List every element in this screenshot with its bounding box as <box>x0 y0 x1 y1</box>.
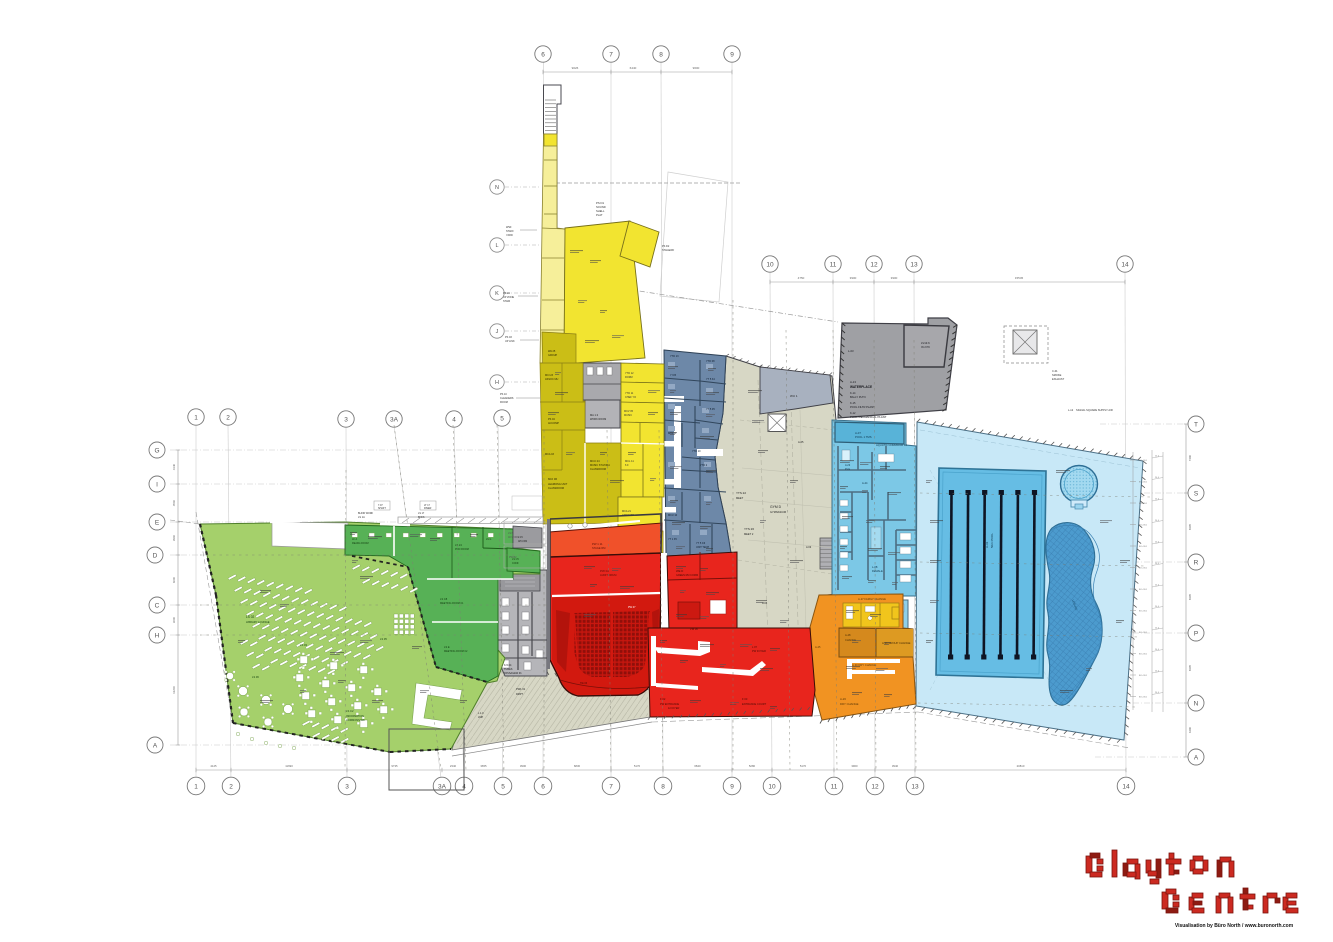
svg-text:TIE 06: TIE 06 <box>580 682 588 685</box>
svg-text:PW ENTRANCE: PW ENTRANCE <box>660 702 679 706</box>
svg-text:GREEN RM COMM: GREEN RM COMM <box>676 574 698 577</box>
svg-text:INFORMATION: INFORMATION <box>346 714 364 718</box>
svg-text:LS 24: LS 24 <box>455 543 462 547</box>
svg-text:PS 2A: PS 2A <box>503 292 510 295</box>
svg-text:3: 3 <box>344 416 348 423</box>
svg-text:6: 6 <box>541 783 545 790</box>
svg-text:5170: 5170 <box>634 764 641 768</box>
svg-text:K-14: K-14 <box>850 391 856 395</box>
svg-text:15545: 15545 <box>1015 276 1024 280</box>
svg-text:LS B: LS B <box>508 532 514 535</box>
svg-text:EXHAUST: EXHAUST <box>1052 377 1065 381</box>
svg-text:13200: 13200 <box>172 686 176 694</box>
svg-text:BO.4 B.1: BO.4 B.1 <box>1139 503 1148 505</box>
svg-text:BO.4 B.1: BO.4 B.1 <box>1139 697 1148 699</box>
svg-text:MCL 11: MCL 11 <box>625 459 634 463</box>
svg-text:2.15: 2.15 <box>518 536 523 539</box>
svg-text:YTD 08: YTD 08 <box>706 360 715 363</box>
svg-text:A 03: A 03 <box>806 545 812 549</box>
svg-text:3900: 3900 <box>520 764 527 768</box>
svg-text:PS 10: PS 10 <box>500 393 507 396</box>
svg-text:6 F: 6 F <box>625 464 629 467</box>
svg-text:LS 02: LS 02 <box>246 615 255 619</box>
svg-text:3900: 3900 <box>891 276 898 280</box>
svg-text:SIGNAL SQUARE SUPPLY AIR: SIGNAL SQUARE SUPPLY AIR <box>1076 408 1113 412</box>
svg-text:AV WORK: AV WORK <box>508 536 519 539</box>
svg-text:A-31: A-31 <box>985 541 989 548</box>
svg-text:C: C <box>155 602 160 609</box>
svg-text:R: R <box>1194 559 1199 566</box>
svg-text:9026: 9026 <box>572 66 579 70</box>
svg-text:7: 7 <box>609 783 613 790</box>
svg-text:PW 06: PW 06 <box>690 627 698 631</box>
svg-text:BO.4 B.1: BO.4 B.1 <box>1139 632 1148 634</box>
svg-text:DMPT: DMPT <box>516 693 524 696</box>
svg-text:LV13.6: LV13.6 <box>921 341 930 345</box>
svg-text:Visualisation by Büro North /: Visualisation by Büro North / www.burono… <box>1175 923 1294 929</box>
svg-text:4560: 4560 <box>172 499 176 506</box>
svg-text:POOL FILTR PLANT: POOL FILTR PLANT <box>850 405 875 409</box>
svg-text:LMP: LMP <box>478 716 483 719</box>
svg-text:8: 8 <box>661 783 665 790</box>
svg-text:LS E: LS E <box>444 645 450 649</box>
svg-text:WE D: WE D <box>676 569 683 573</box>
svg-text:A-26: A-26 <box>840 697 846 701</box>
svg-text:MCI 23: MCI 23 <box>545 374 554 377</box>
svg-text:SHAFT: SHAFT <box>378 507 386 510</box>
svg-text:MEETING ROOM 01: MEETING ROOM 01 <box>440 602 464 605</box>
svg-text:5: 5 <box>501 783 505 790</box>
svg-text:BALLY PLTN: BALLY PLTN <box>850 395 866 399</box>
svg-text:SMOKE: SMOKE <box>1052 373 1062 377</box>
svg-text:N: N <box>495 185 499 191</box>
svg-text:PW B2: PW B2 <box>509 556 517 559</box>
svg-text:BO.4 B.1: BO.4 B.1 <box>1139 675 1148 677</box>
svg-text:YTD 13: YTD 13 <box>670 355 679 358</box>
svg-text:PW 07: PW 07 <box>628 606 636 609</box>
svg-text:50m POOL: 50m POOL <box>990 533 994 548</box>
svg-text:A: A <box>1194 754 1199 761</box>
svg-text:MCI 06: MCI 06 <box>548 477 557 481</box>
svg-text:3960: 3960 <box>172 534 176 541</box>
svg-text:L 07: L 07 <box>752 645 758 649</box>
svg-text:COMMONS WK: COMMONS WK <box>346 718 365 722</box>
svg-text:A-27 FAMILY CHANGE: A-27 FAMILY CHANGE <box>858 597 886 601</box>
svg-text:LS C8: LS C8 <box>440 597 448 601</box>
svg-text:YT 5 C6: YT 5 C6 <box>696 542 706 545</box>
svg-text:PW1 01: PW1 01 <box>516 687 526 691</box>
svg-text:12: 12 <box>871 783 879 790</box>
svg-text:SHELL: SHELL <box>596 209 605 213</box>
svg-text:2: 2 <box>226 414 230 421</box>
svg-text:4125: 4125 <box>210 764 217 768</box>
svg-text:GYMNASIUM: GYMNASIUM <box>770 510 786 514</box>
svg-text:D: D <box>153 552 158 559</box>
svg-text:14: 14 <box>1122 783 1130 790</box>
svg-text:YT 5 05: YT 5 05 <box>706 408 715 411</box>
svg-text:6: 6 <box>541 51 545 58</box>
svg-text:L: L <box>495 243 498 249</box>
svg-text:3600: 3600 <box>172 616 176 623</box>
svg-text:MUSIC STU/ORA: MUSIC STU/ORA <box>590 464 610 467</box>
svg-text:DORM: DORM <box>625 376 633 379</box>
svg-text:14: 14 <box>1121 261 1129 268</box>
svg-text:POD ROOM: POD ROOM <box>455 548 469 551</box>
svg-text:STAFF: STAFF <box>506 230 514 233</box>
svg-text:LS 1A: LS 1A <box>358 516 365 519</box>
svg-text:BO.4 B.1: BO.4 B.1 <box>1139 611 1148 613</box>
svg-text:9600: 9600 <box>693 66 700 70</box>
svg-text:A-28: A-28 <box>845 633 851 637</box>
svg-text:F 02: F 02 <box>660 697 666 701</box>
svg-text:6830: 6830 <box>574 764 581 768</box>
svg-text:LS 17: LS 17 <box>418 512 425 515</box>
svg-text:6440: 6440 <box>630 66 637 70</box>
svg-text:LIBRARY LOUNGE: LIBRARY LOUNGE <box>246 620 270 624</box>
svg-text:CONF: CONF <box>512 562 519 565</box>
svg-text:BO.4 B.1: BO.4 B.1 <box>1139 482 1148 484</box>
svg-text:LEARNING UNIT: LEARNING UNIT <box>548 483 568 486</box>
svg-text:CLEANERS: CLEANERS <box>500 397 514 400</box>
svg-text:ASSOC MU: ASSOC MU <box>545 378 559 381</box>
svg-text:T: T <box>1194 421 1198 428</box>
svg-text:MCA 03: MCA 03 <box>545 453 555 456</box>
svg-text:UP LINK: UP LINK <box>505 340 515 343</box>
svg-text:2340: 2340 <box>450 764 457 768</box>
svg-text:YARD: YARD <box>506 234 513 237</box>
svg-text:CLASSROOM: CLASSROOM <box>548 487 564 490</box>
svg-text:P: P <box>1194 630 1198 637</box>
svg-text:PS 04: PS 04 <box>548 418 555 421</box>
svg-text:C-01: C-01 <box>1052 369 1058 373</box>
svg-text:PS D1: PS D1 <box>596 201 605 205</box>
svg-text:2: 2 <box>229 783 233 790</box>
svg-text:4: 4 <box>452 416 456 423</box>
svg-text:MEET 2: MEET 2 <box>744 532 754 536</box>
svg-text:WSF: WSF <box>506 226 512 229</box>
svg-text:Y 6 B: Y 6 B <box>670 374 676 377</box>
svg-text:LF A: LF A <box>352 538 357 541</box>
svg-text:J: J <box>496 329 499 335</box>
svg-text:BO.4 B.1: BO.4 B.1 <box>1139 654 1148 656</box>
svg-text:YTD 12: YTD 12 <box>625 372 634 375</box>
svg-text:G: G <box>154 447 159 454</box>
svg-text:6840: 6840 <box>694 764 701 768</box>
svg-text:YTS 22: YTS 22 <box>736 491 746 495</box>
svg-text:TURES: TURES <box>504 668 513 671</box>
svg-text:6000: 6000 <box>172 576 176 583</box>
svg-text:8395: 8395 <box>1188 593 1192 600</box>
svg-text:YTD 10: YTD 10 <box>692 450 701 453</box>
svg-text:STAIR: STAIR <box>503 300 510 303</box>
svg-text:13: 13 <box>911 783 919 790</box>
svg-text:11: 11 <box>830 261 837 268</box>
svg-text:10: 10 <box>768 783 776 790</box>
svg-text:1: 1 <box>194 414 198 421</box>
svg-text:AHU RM: AHU RM <box>518 540 527 543</box>
svg-text:CHEF YO: CHEF YO <box>625 396 636 399</box>
svg-text:PS 03: PS 03 <box>505 336 512 339</box>
svg-text:YT 5 34: YT 5 34 <box>706 378 715 381</box>
svg-text:13: 13 <box>910 261 918 268</box>
svg-text:YTS 26: YTS 26 <box>744 527 754 531</box>
svg-text:READG ROOM: READG ROOM <box>352 542 369 545</box>
svg-text:7490: 7490 <box>1188 454 1192 461</box>
svg-text:1: 1 <box>194 783 198 790</box>
svg-text:ACCOMP: ACCOMP <box>548 422 559 425</box>
svg-text:ENTRANCE COURT: ENTRANCE COURT <box>742 702 767 706</box>
svg-text:MEETING ROOM 02: MEETING ROOM 02 <box>444 650 468 653</box>
svg-text:5: 5 <box>500 415 504 422</box>
svg-text:PLG: PLG <box>845 467 850 471</box>
svg-text:LS C2: LS C2 <box>346 709 354 713</box>
svg-text:7: 7 <box>609 51 613 58</box>
svg-text:11690: 11690 <box>285 764 293 768</box>
svg-text:AQUATIC CORRIDOR 10: AQUATIC CORRIDOR 10 <box>876 443 907 447</box>
svg-text:ROOM: ROOM <box>500 401 508 404</box>
svg-text:MCV 05: MCV 05 <box>624 410 634 413</box>
svg-text:A 23: A 23 <box>845 463 851 467</box>
svg-text:IN 2 PK: IN 2 PK <box>921 345 930 349</box>
svg-text:K: K <box>495 291 499 297</box>
svg-text:F 03: F 03 <box>742 697 748 701</box>
svg-text:GYM D: GYM D <box>770 505 782 509</box>
svg-text:K-15: K-15 <box>850 401 856 405</box>
svg-text:UP ZONE: UP ZONE <box>503 296 514 299</box>
svg-text:MCU 24: MCU 24 <box>590 459 600 463</box>
svg-text:LS 06: LS 06 <box>252 675 259 679</box>
svg-text:9: 9 <box>730 51 734 58</box>
svg-text:H: H <box>495 380 499 386</box>
svg-text:6490: 6490 <box>1188 726 1192 733</box>
svg-text:BO.4 B.1: BO.4 B.1 <box>1139 568 1148 570</box>
svg-text:A-05: A-05 <box>798 440 804 444</box>
svg-text:K-5.04: K-5.04 <box>504 664 512 667</box>
svg-text:L 1.0: L 1.0 <box>478 712 484 715</box>
svg-text:12: 12 <box>870 261 878 268</box>
svg-text:PS D2: PS D2 <box>662 245 670 248</box>
svg-text:I: I <box>156 481 158 488</box>
svg-text:4750: 4750 <box>798 276 805 280</box>
svg-text:BO.4 B.1: BO.4 B.1 <box>1139 546 1148 548</box>
svg-text:WU 1: WU 1 <box>790 394 798 398</box>
svg-text:11: 11 <box>831 783 838 790</box>
svg-text:GROUP: GROUP <box>548 354 558 357</box>
svg-text:& FOYER: & FOYER <box>668 706 680 710</box>
svg-text:BLIND WORK: BLIND WORK <box>358 512 374 515</box>
svg-text:20810: 20810 <box>1017 764 1025 768</box>
svg-text:5170: 5170 <box>800 764 807 768</box>
svg-text:YT 1 35: YT 1 35 <box>668 538 677 541</box>
svg-text:BO.4 B.1: BO.4 B.1 <box>1139 460 1148 462</box>
svg-text:PASSAGEW #1: PASSAGEW #1 <box>504 672 522 675</box>
svg-text:PW 1 11: PW 1 11 <box>592 542 603 546</box>
svg-text:LS 03: LS 03 <box>300 643 308 647</box>
svg-text:A-13: A-13 <box>850 380 856 384</box>
svg-text:8395: 8395 <box>1188 664 1192 671</box>
svg-text:N: N <box>1194 700 1199 707</box>
svg-text:PLAT: PLAT <box>596 213 603 217</box>
svg-text:10: 10 <box>766 261 774 268</box>
svg-text:3940: 3940 <box>892 764 899 768</box>
svg-text:MEET: MEET <box>736 496 744 500</box>
svg-text:RISER: RISER <box>424 507 432 510</box>
svg-text:A-25: A-25 <box>815 645 821 649</box>
svg-text:3: 3 <box>345 783 349 790</box>
svg-text:3A: 3A <box>438 783 447 790</box>
svg-text:A-24: A-24 <box>862 481 868 485</box>
svg-text:9: 9 <box>730 783 734 790</box>
svg-text:BO.4 B.1: BO.4 B.1 <box>1139 589 1148 591</box>
svg-text:POOL 1 TMS: POOL 1 TMS <box>855 435 872 439</box>
svg-text:8395: 8395 <box>1188 523 1192 530</box>
svg-text:POOL MECHANICAL PLANT: POOL MECHANICAL PLANT <box>850 415 887 419</box>
svg-text:FEMALE: FEMALE <box>872 569 883 573</box>
svg-text:4140: 4140 <box>172 463 176 470</box>
svg-text:WORK ROOM: WORK ROOM <box>590 418 606 421</box>
svg-text:L-03: L-03 <box>848 349 854 353</box>
svg-text:PW 02: PW 02 <box>600 569 609 573</box>
svg-text:3A: 3A <box>390 416 399 423</box>
svg-text:MA 1.3: MA 1.3 <box>590 413 599 417</box>
svg-text:MCU 10: MCU 10 <box>668 514 678 517</box>
svg-text:LS G: LS G <box>486 539 491 541</box>
svg-text:STAGEWF: STAGEWF <box>662 249 675 252</box>
svg-text:WATERPLACE: WATERPLACE <box>850 385 872 389</box>
svg-text:H: H <box>155 632 160 639</box>
svg-text:STAGE RM: STAGE RM <box>592 546 605 550</box>
svg-text:8: 8 <box>659 51 663 58</box>
svg-text:WA 25: WA 25 <box>548 350 556 353</box>
svg-text:E: E <box>155 519 160 526</box>
svg-text:A: A <box>153 742 158 749</box>
svg-text:3655: 3655 <box>480 764 487 768</box>
svg-text:L-12: L-12 <box>1068 408 1074 412</box>
svg-text:CLASSROOM: CLASSROOM <box>590 468 606 471</box>
svg-text:5280: 5280 <box>749 764 756 768</box>
svg-text:S: S <box>1194 490 1199 497</box>
svg-text:BO.4 B.1: BO.4 B.1 <box>1139 525 1148 527</box>
svg-text:BNKS: BNKS <box>418 516 425 519</box>
svg-text:YTD 2: YTD 2 <box>700 464 708 467</box>
svg-text:3900: 3900 <box>850 276 857 280</box>
svg-text:MCA 21: MCA 21 <box>622 510 632 513</box>
svg-text:PW FOYER: PW FOYER <box>752 649 766 653</box>
svg-text:LS 05: LS 05 <box>380 637 387 641</box>
svg-text:3900: 3900 <box>851 764 858 768</box>
svg-text:SOUND: SOUND <box>596 205 606 209</box>
svg-text:MUSIC: MUSIC <box>624 414 632 417</box>
svg-text:AUDITORIUM: AUDITORIUM <box>600 573 616 577</box>
svg-text:9735: 9735 <box>391 764 398 768</box>
svg-text:DRY CHANGE: DRY CHANGE <box>840 702 859 706</box>
svg-text:YTD 11: YTD 11 <box>625 392 634 395</box>
